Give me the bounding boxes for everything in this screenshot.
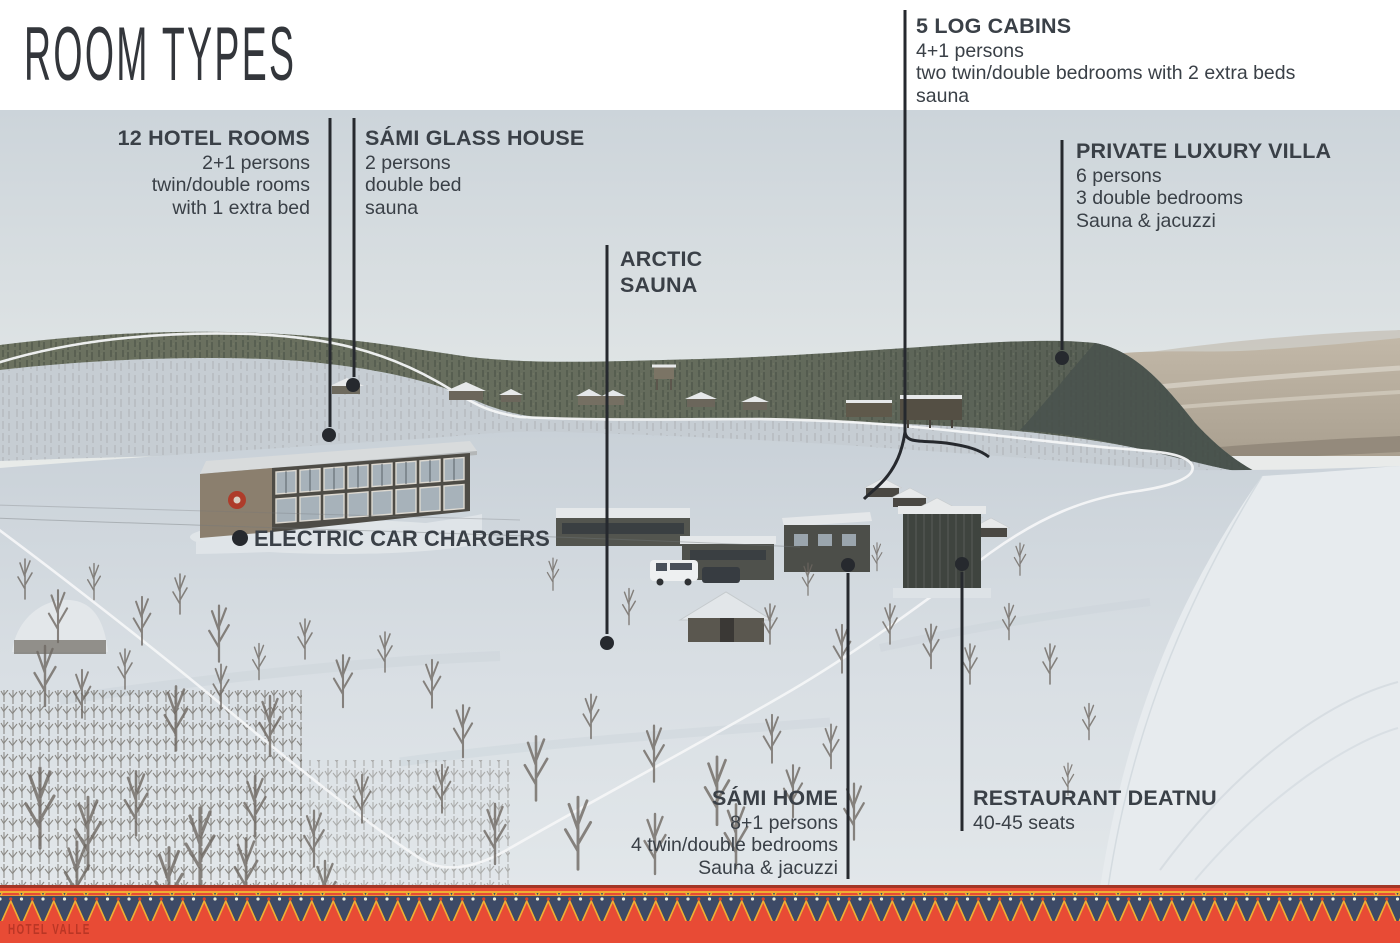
hotel-valle-logo: HOTEL VALLE — [8, 922, 91, 938]
hotel-rooms-heading: 12 HOTEL ROOMS — [40, 126, 310, 152]
villa-heading: PRIVATE LUXURY VILLA — [1076, 139, 1331, 165]
label-sami-home: SÁMI HOME 8+1 persons 4 twin/double bedr… — [558, 786, 838, 880]
label-log-cabins: 5 LOG CABINS 4+1 persons two twin/double… — [916, 14, 1295, 108]
label-glass-house: SÁMI GLASS HOUSE 2 persons double bed sa… — [365, 126, 584, 220]
restaurant-building — [893, 506, 991, 598]
label-restaurant: RESTAURANT DEATNU 40-45 seats — [973, 786, 1217, 834]
glass-house-dot — [346, 378, 360, 392]
restaurant-heading: RESTAURANT DEATNU — [973, 786, 1217, 812]
label-arctic-sauna: ARCTIC SAUNA — [620, 247, 702, 299]
glass-house-heading: SÁMI GLASS HOUSE — [365, 126, 584, 152]
log-cabins-heading: 5 LOG CABINS — [916, 14, 1295, 40]
sami-home-heading: SÁMI HOME — [558, 786, 838, 812]
sami-home-building — [782, 512, 872, 572]
arctic-sauna-dot — [600, 636, 614, 650]
restaurant-dot — [955, 557, 969, 571]
label-villa: PRIVATE LUXURY VILLA 6 persons 3 double … — [1076, 139, 1331, 233]
car — [702, 567, 740, 583]
hotel-rooms-dot — [322, 428, 336, 442]
sami-border — [0, 885, 1400, 943]
villa-dot — [1055, 351, 1069, 365]
sami-home-dot — [841, 558, 855, 572]
electric-dot — [232, 530, 248, 546]
label-hotel-rooms: 12 HOTEL ROOMS 2+1 persons twin/double r… — [40, 126, 310, 220]
label-electric-chargers: ELECTRIC CAR CHARGERS — [254, 526, 550, 552]
page-title: ROOM TYPES — [24, 12, 296, 99]
